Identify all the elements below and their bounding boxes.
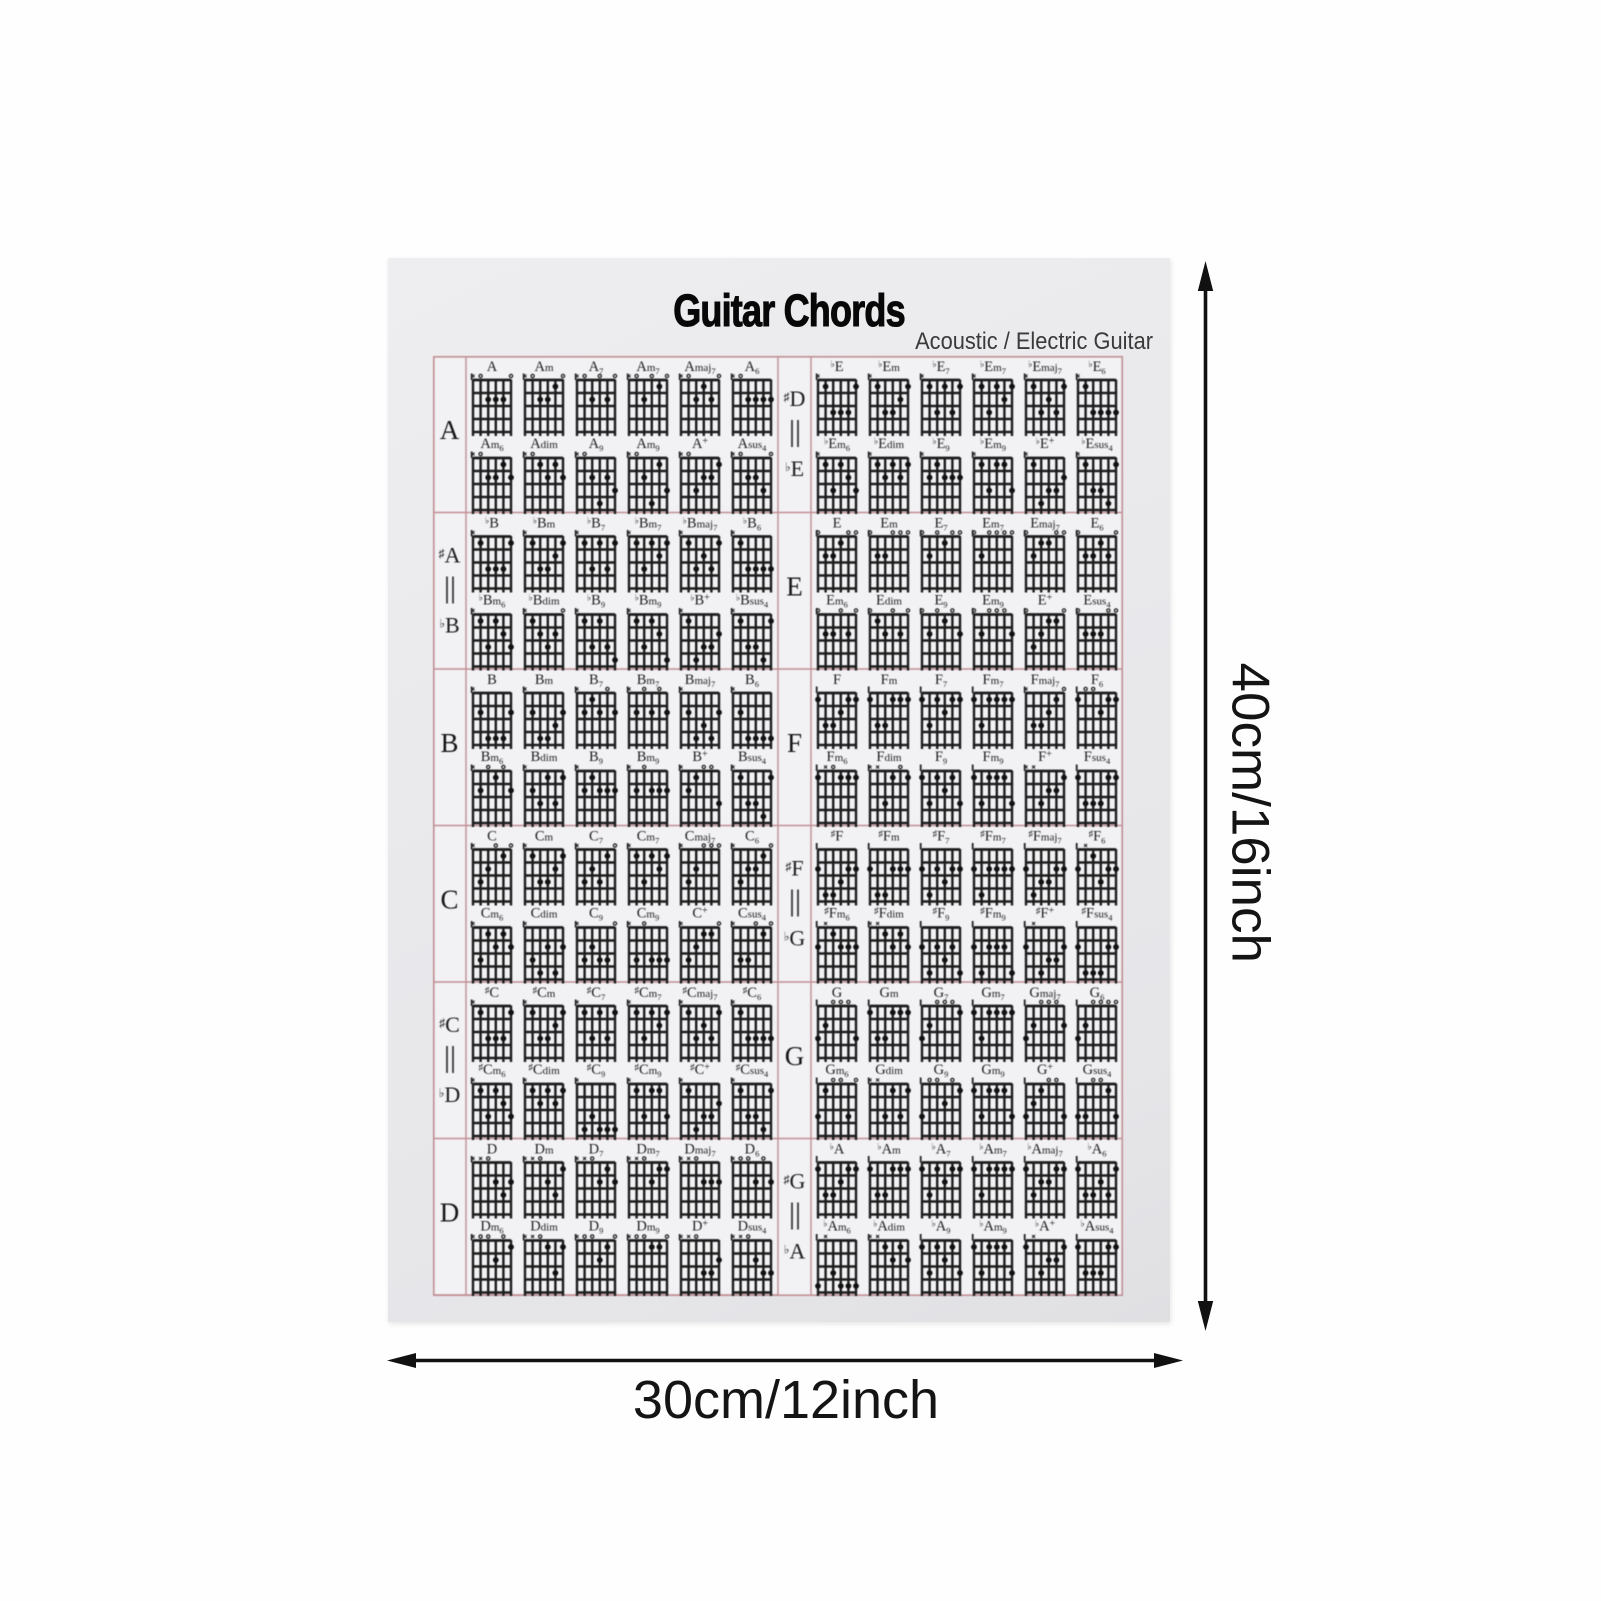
svg-text:Gm: Gm — [879, 985, 898, 1001]
svg-text:B: B — [487, 672, 497, 688]
svg-text:Dm: Dm — [534, 1142, 553, 1158]
svg-text:Emaj7: Emaj7 — [1030, 516, 1060, 533]
svg-text:Cm: Cm — [535, 829, 554, 845]
svg-text:Bdim: Bdim — [531, 749, 558, 765]
svg-text:D: D — [487, 1142, 497, 1158]
svg-text:Bmaj7: Bmaj7 — [685, 672, 715, 689]
svg-text:Fm: Fm — [881, 672, 898, 688]
svg-text:G: G — [785, 1041, 805, 1071]
svg-text:B: B — [440, 728, 458, 758]
svg-text:♭Bmaj7: ♭Bmaj7 — [683, 515, 718, 532]
svg-text:C: C — [440, 885, 458, 915]
svg-text:♭Emaj7: ♭Emaj7 — [1028, 359, 1062, 376]
svg-text:G: G — [832, 985, 843, 1001]
svg-text:F: F — [833, 672, 841, 688]
svg-text:F: F — [787, 728, 802, 758]
svg-text:Gdim: Gdim — [875, 1062, 903, 1078]
svg-text:D: D — [440, 1198, 460, 1228]
svg-text:♭Amaj7: ♭Amaj7 — [1027, 1141, 1062, 1158]
svg-text:Am: Am — [534, 359, 553, 375]
svg-text:Cmaj7: Cmaj7 — [685, 829, 715, 846]
svg-text:Fmaj7: Fmaj7 — [1031, 672, 1060, 689]
svg-text:C: C — [487, 829, 497, 845]
svg-text:Em: Em — [880, 516, 898, 532]
svg-text:Amaj7: Amaj7 — [684, 359, 715, 376]
svg-text:Gmaj7: Gmaj7 — [1029, 985, 1060, 1002]
svg-text:A: A — [440, 415, 460, 445]
svg-text:♯Fmaj7: ♯Fmaj7 — [1028, 828, 1061, 845]
svg-text:Adim: Adim — [530, 436, 558, 452]
svg-text:Edim: Edim — [876, 593, 902, 609]
svg-text:Ddim: Ddim — [530, 1219, 558, 1235]
svg-text:A: A — [487, 359, 498, 375]
svg-text:♭Asus4: ♭Asus4 — [1080, 1218, 1114, 1235]
svg-text:E: E — [833, 516, 842, 532]
svg-text:Bm: Bm — [535, 672, 554, 688]
svg-text:Cdim: Cdim — [531, 906, 558, 922]
svg-text:E: E — [786, 572, 803, 602]
svg-text:Fdim: Fdim — [876, 749, 902, 765]
svg-text:Dmaj7: Dmaj7 — [684, 1142, 715, 1159]
svg-text:♯Cmaj7: ♯Cmaj7 — [683, 985, 718, 1002]
